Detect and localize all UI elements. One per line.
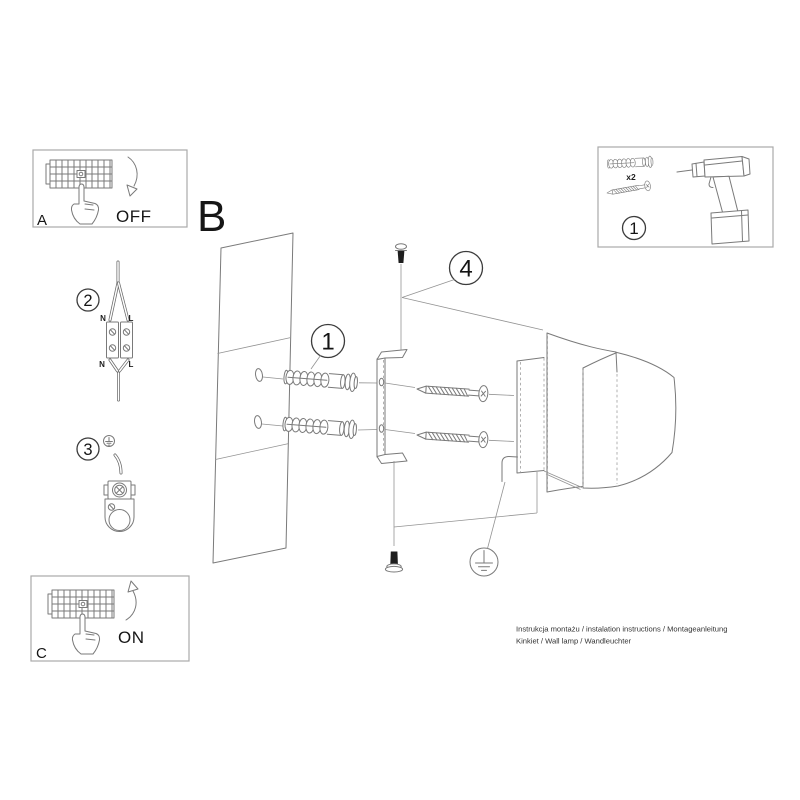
step4-leaders	[402, 280, 543, 331]
power-on-box: C ON	[31, 576, 189, 662]
power-off-box: A OFF	[33, 150, 187, 229]
wire-n-out-label: N	[99, 360, 105, 369]
cable-hook	[502, 457, 518, 482]
wire-l-out-label: L	[129, 360, 134, 369]
wall-anchor-icon	[607, 156, 653, 170]
anchor-leader-lines	[358, 383, 378, 430]
screw-leader-lines	[489, 394, 514, 441]
on-label: ON	[118, 628, 145, 647]
mounting-bracket	[377, 350, 407, 464]
tools-step-number: 1	[629, 219, 638, 238]
hand-press-icon	[72, 614, 99, 654]
footer-line-1: Instrukcja montażu / instalation instruc…	[516, 625, 727, 634]
footer-line-2: Kinkiet / Wall lamp / Wandleuchter	[516, 637, 632, 646]
mounting-screw-bottom	[416, 427, 488, 448]
wall-anchor-top	[283, 368, 358, 392]
mounting-screw-top	[416, 381, 488, 402]
lamp-cable-icon	[110, 360, 128, 400]
wall-panel	[213, 233, 293, 563]
supply-cable-icon	[110, 262, 128, 320]
step1-leader	[311, 356, 321, 370]
wire-n-in-label: N	[100, 314, 106, 323]
locking-bolt-top	[396, 244, 407, 263]
ground-terminal-icon	[104, 481, 135, 499]
main-assembly-diagram: B 1	[197, 192, 676, 576]
shade-front-sheet	[583, 353, 676, 489]
wiring-step: 2 N L N L	[77, 262, 134, 400]
instruction-sheet: A OFF 2 N L N L 3	[0, 0, 800, 800]
drill-icon	[677, 157, 750, 245]
terminal-block-icon	[107, 322, 133, 358]
section-b-label: B	[197, 192, 226, 241]
circuit-breaker-icon	[48, 590, 114, 618]
locking-bolt-bottom	[385, 552, 402, 573]
step4-number: 4	[459, 256, 472, 283]
panel-c-label: C	[36, 645, 47, 662]
screw-icon	[606, 180, 651, 197]
footer-captions: Instrukcja montażu / instalation instruc…	[516, 625, 727, 646]
step2-number: 2	[83, 292, 92, 310]
step3-number: 3	[83, 441, 92, 459]
bracket-leader-lines	[385, 383, 415, 434]
step1-number: 1	[321, 329, 334, 356]
wall-anchor-bottom	[282, 415, 357, 439]
arrow-up-icon	[126, 581, 138, 620]
wall-lamp-body	[502, 333, 676, 492]
arrow-down-icon	[127, 157, 137, 196]
circuit-breaker-icon	[46, 160, 112, 188]
ground-wire-icon	[115, 455, 121, 473]
hand-press-icon	[71, 184, 98, 224]
quantity-label: x2	[626, 172, 636, 182]
bolt-axis-bottom	[394, 461, 537, 546]
tools-box: x2 1	[598, 147, 773, 247]
mounting-plate-icon	[105, 499, 134, 532]
instruction-drawing: A OFF 2 N L N L 3	[0, 0, 800, 800]
off-label: OFF	[116, 207, 152, 226]
panel-a-label: A	[37, 212, 47, 229]
ground-symbol-icon	[104, 436, 115, 447]
ground-class-symbol	[470, 482, 505, 576]
grounding-step: 3	[77, 436, 135, 532]
